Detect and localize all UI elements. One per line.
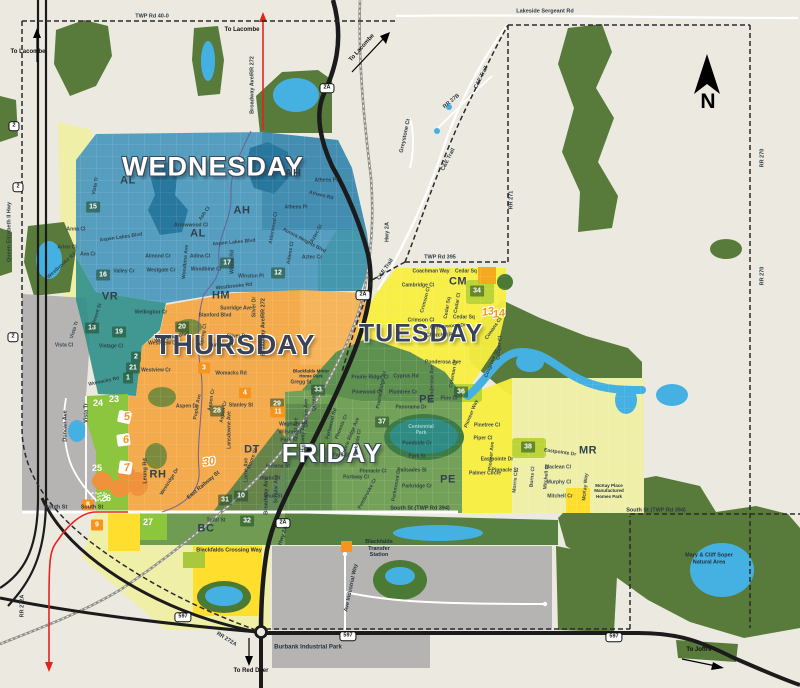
street-label: Almond Cr	[145, 255, 171, 260]
street-label: Stanley St	[229, 404, 253, 409]
zone-number-badge: 1	[123, 373, 133, 384]
road-label: Broadway Ave/RR 272	[261, 298, 267, 356]
street-label: Cosgrove St	[484, 349, 500, 378]
zone-number-badge: 9	[91, 520, 103, 531]
area-code-label: AH	[234, 206, 251, 217]
street-label: Lorne Ave	[245, 458, 250, 482]
road-label: RR 270	[760, 267, 766, 286]
day-zone-label: WEDNESDAY	[122, 154, 304, 181]
area-code-label: AL	[120, 176, 136, 187]
zone-number-stylized: 6	[122, 434, 130, 447]
zone-number-badge: 3	[198, 363, 210, 374]
zone-number-badge: 34	[470, 286, 484, 297]
street-label: Morris Cl	[513, 471, 520, 493]
street-label: Vintage Cl	[99, 345, 123, 350]
road-label: RR 272A	[20, 595, 26, 618]
street-label: Cyprus Rd	[393, 375, 418, 380]
waste-collection-schedule-map: WEDNESDAYTHURSDAYTUESDAYFRIDAYALALAHAHVR…	[0, 0, 800, 688]
street-label: Willow Rd	[231, 250, 236, 274]
zone-number-badge: 4	[239, 388, 251, 399]
zone-number-badge: 16	[96, 270, 110, 281]
road-label: South St	[45, 505, 68, 511]
street-label: Ash Cl	[198, 206, 211, 222]
street-label: Adina Cl	[190, 255, 210, 260]
street-label: Athens Rd	[308, 191, 333, 202]
area-code-label: BC	[198, 524, 215, 535]
street-label: Arrowwood Cl	[174, 224, 208, 229]
street-label: Park St	[332, 454, 349, 459]
highway-shield: 597	[605, 632, 622, 642]
street-label: Crimson Cl	[408, 319, 435, 324]
road-label: Leung Rd	[143, 458, 149, 483]
street-label: Park St	[408, 455, 425, 460]
street-label: Sunridge Ave	[220, 307, 252, 312]
area-code-label: CM	[449, 277, 467, 288]
street-label: Anna Cl	[67, 228, 86, 233]
street-label: Cedar Sq	[455, 270, 477, 275]
street-label: Portway Cl	[343, 476, 369, 481]
zone-number-label: 25	[92, 463, 102, 473]
street-label: Aspen Lakes Blvd	[99, 233, 142, 244]
street-label: Pinnacle St	[492, 469, 519, 474]
street-label: Stanford Blvd	[199, 314, 232, 319]
street-label: Westbrooke Rd	[47, 252, 78, 280]
street-label: Vista Tr	[70, 321, 80, 340]
street-label: Athens Pl	[284, 206, 307, 211]
street-label: Gregg St	[290, 381, 311, 386]
highway-shield: 2A	[319, 83, 334, 93]
direction-label: To Joffre	[686, 647, 711, 653]
highway-shield: 2	[7, 332, 18, 342]
highway-shield: 2	[8, 121, 19, 131]
road-label: Broadway Ave/RR 272	[250, 56, 256, 114]
place-label: Centennial Park	[408, 424, 434, 436]
direction-label: To Red Deer	[234, 668, 269, 674]
road-label: Lakeside Sergeant Rd	[516, 9, 573, 15]
street-label: Aztec St	[310, 224, 324, 244]
road-label: Vista Tr	[84, 403, 90, 423]
street-label: Winston Pl	[238, 275, 264, 280]
street-label: Burns Cl	[530, 466, 537, 487]
street-label: Plumtree Cr	[389, 391, 417, 396]
road-label: RR 27B	[443, 94, 462, 111]
street-label: Churchill Pl	[426, 334, 454, 339]
highway-shield: 597	[339, 631, 356, 641]
area-code-label: VR	[102, 292, 118, 303]
area-code-label: AH	[285, 169, 302, 180]
area-code-label: HM	[212, 291, 230, 302]
road-label: South St (TWP Rd 394)	[390, 506, 449, 512]
zone-number-stylized: 30	[202, 455, 216, 469]
road-label: C&E Trail	[377, 258, 395, 281]
street-label: Highway Ave	[302, 422, 307, 453]
place-label: Blackfalds Transfer Station	[365, 539, 393, 559]
street-label: Vista Cl	[55, 344, 73, 349]
street-label: Aztec Cr	[302, 256, 322, 261]
street-label: Arlen Cl	[57, 246, 76, 251]
street-label: Womacks Rd	[215, 372, 246, 377]
street-label: Crimson Cl	[420, 286, 432, 313]
road-label: South St (TWP Rd 394)	[626, 508, 685, 514]
area-code-label: AL	[190, 229, 206, 240]
street-label: Eastpointe Dr	[544, 448, 577, 457]
area-code-label: RH	[150, 470, 167, 481]
road-label: C&E Trail	[441, 148, 457, 172]
road-label: TWP Rd 40-0	[135, 14, 169, 20]
street-label: Lansdowne Ave	[228, 411, 233, 449]
street-label: Woodbine Ave	[182, 245, 190, 280]
place-label: Blackfalds Motor Home Park	[293, 369, 329, 380]
street-label: Parkmount Cr	[392, 468, 403, 501]
area-code-label: MR	[579, 446, 597, 457]
road-label: Duncan Ave	[63, 410, 69, 441]
zone-number-badge: 10	[234, 491, 248, 502]
road-label: Greystone Ct	[400, 119, 413, 154]
street-label: Sunrise Cl	[209, 344, 234, 349]
zone-number-badge: 15	[86, 202, 100, 213]
street-label: Silver Dr	[253, 297, 258, 318]
road-label: East Railway St	[187, 471, 222, 501]
street-label: Cedar Sq	[453, 316, 475, 321]
street-label: Ava Cr	[80, 253, 96, 258]
street-label: Valley Cr	[113, 270, 134, 275]
street-label: Coachman Way	[412, 270, 449, 275]
street-label: Queen Cl	[313, 389, 318, 411]
street-label: Trout St	[207, 519, 226, 524]
street-label: Shull St	[264, 495, 283, 500]
street-label: McKay Way	[582, 473, 589, 501]
street-label: Westview Cr	[148, 342, 178, 347]
street-label: Womacks Rd	[88, 376, 120, 387]
zone-number-badge: 32	[240, 516, 254, 527]
road-label: Hwy 2A	[385, 222, 391, 242]
street-label: Westgate Cr	[146, 269, 175, 274]
road-label: RR 272A	[215, 632, 237, 649]
street-label: Parkridge Cr	[402, 485, 432, 490]
street-label: Silver Dr	[227, 335, 248, 340]
street-label: Alderwood Cl	[269, 212, 280, 245]
place-label: Burbank Industrial Park	[274, 644, 342, 651]
street-label: Mitchell Cr	[547, 495, 573, 500]
street-label: Vista Tr	[92, 177, 100, 196]
street-label: Woodbine Cl	[191, 268, 221, 273]
street-label: Panorama Dr	[395, 406, 426, 411]
direction-label: To Lacombe	[225, 27, 260, 33]
street-label: Pine Cl	[441, 397, 458, 402]
highway-shield: 2A	[355, 290, 370, 300]
road-label: Queen Elizabeth II Hwy	[7, 202, 13, 262]
place-label: McKay Place Manufactured Homes Park	[594, 483, 624, 499]
road-label: RR 270	[760, 149, 766, 168]
direction-label: To Lacombe	[11, 49, 46, 55]
compass-north-label: N	[700, 90, 715, 114]
highway-shield: 2	[12, 182, 23, 192]
map-labels-layer: WEDNESDAYTHURSDAYTUESDAYFRIDAYALALAHAHVR…	[0, 0, 800, 688]
street-label: Aspen Lakes Blvd	[212, 239, 255, 248]
road-label: TWP Rd 395	[424, 255, 456, 261]
street-label: East Ave	[295, 418, 300, 439]
street-label: Pembrooke Cr	[358, 478, 378, 511]
street-label: Westview Cr	[141, 369, 171, 374]
street-label: Cedar Sq	[444, 297, 453, 319]
road-label: Ave Industrial Way	[344, 564, 360, 613]
highway-shield: 597	[174, 612, 191, 622]
street-label: Pondside Cr	[402, 442, 431, 447]
direction-label: To Lacombe	[348, 33, 376, 63]
street-label: Adams Cl	[287, 241, 296, 265]
street-label: Ponderosa Ave	[431, 365, 436, 401]
road-label: Hwy 2A	[278, 526, 289, 547]
road-label: C&E Trail	[474, 66, 490, 90]
zone-number-badge: 19	[112, 327, 126, 338]
street-label: Indiana St	[266, 465, 290, 470]
zone-number-badge: 2	[131, 352, 141, 363]
zone-number-stylized: 7	[123, 462, 131, 475]
zone-number-label: 27	[143, 517, 153, 527]
street-label: Wellington Cr	[135, 311, 167, 316]
street-label: Westbrooke Rd	[216, 283, 253, 292]
zone-number-label: 23	[109, 394, 119, 404]
street-label: Poplar Ave	[193, 394, 202, 420]
street-label: Park St	[280, 439, 297, 444]
street-label: Eastpointe Dr	[481, 458, 514, 463]
street-label: Pinetree Cl	[474, 424, 500, 429]
area-code-label: PE	[440, 475, 456, 486]
zone-number-badge: 38	[521, 442, 535, 453]
place-label: Blackfalds Crossing Way	[196, 548, 262, 555]
place-label: Mary & Cliff Soper Natural Area	[685, 552, 733, 565]
road-label: South St	[81, 505, 104, 511]
zone-number-badge: 37	[375, 417, 389, 428]
street-label: Athens Pl	[314, 179, 337, 184]
zone-number-label: 26	[101, 493, 111, 503]
road-label: RR 271	[509, 191, 515, 210]
zone-number-badge: 31	[218, 495, 232, 506]
zone-number-badge: 12	[271, 268, 285, 279]
street-label: Cedar Cl	[454, 292, 462, 313]
zone-number-badge: 11	[270, 407, 285, 418]
zone-number-label: 24	[93, 398, 103, 408]
street-label: Murphy Cl	[547, 481, 571, 486]
street-label: Maclean Cl	[545, 466, 571, 471]
zone-number-stylized: 5	[123, 411, 131, 424]
